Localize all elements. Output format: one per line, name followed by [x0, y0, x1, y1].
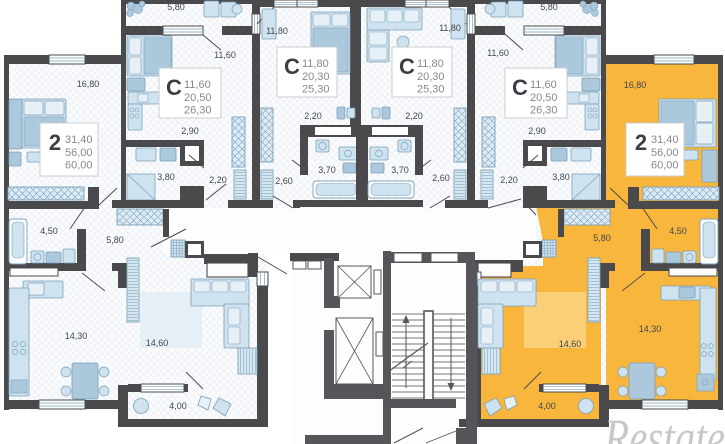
svg-text:26,30: 26,30	[530, 105, 558, 117]
svg-text:4,00: 4,00	[538, 401, 556, 411]
svg-text:11,60: 11,60	[530, 79, 557, 91]
svg-text:11,60: 11,60	[184, 79, 211, 91]
svg-text:11,80: 11,80	[266, 26, 288, 36]
svg-text:56,00: 56,00	[65, 147, 93, 159]
svg-text:3,80: 3,80	[157, 172, 175, 182]
svg-text:C: C	[399, 54, 415, 79]
svg-text:31,40: 31,40	[65, 134, 93, 146]
svg-text:56,00: 56,00	[651, 147, 679, 159]
svg-text:3,70: 3,70	[318, 165, 336, 175]
svg-text:14,60: 14,60	[559, 339, 582, 349]
svg-text:25,30: 25,30	[417, 84, 445, 96]
svg-text:2: 2	[49, 130, 61, 155]
svg-text:C: C	[284, 54, 300, 79]
svg-text:4,00: 4,00	[169, 401, 187, 411]
svg-text:11,60: 11,60	[214, 50, 236, 60]
svg-text:2,90: 2,90	[181, 126, 199, 136]
svg-text:20,30: 20,30	[417, 71, 445, 83]
svg-text:4,50: 4,50	[40, 226, 58, 236]
svg-text:14,30: 14,30	[65, 331, 88, 341]
svg-text:11,80: 11,80	[417, 58, 444, 70]
svg-text:4,50: 4,50	[669, 226, 687, 236]
svg-text:60,00: 60,00	[65, 160, 93, 172]
svg-text:2,60: 2,60	[275, 176, 293, 186]
svg-text:2: 2	[635, 130, 647, 155]
svg-text:2,20: 2,20	[209, 175, 227, 185]
svg-text:2,20: 2,20	[500, 175, 518, 185]
svg-text:3,70: 3,70	[391, 165, 409, 175]
svg-text:5,80: 5,80	[540, 2, 558, 12]
svg-text:20,50: 20,50	[184, 92, 212, 104]
svg-text:Restate: Restate	[603, 408, 725, 444]
svg-text:5,80: 5,80	[167, 2, 185, 12]
svg-text:20,30: 20,30	[302, 71, 330, 83]
svg-text:14,60: 14,60	[146, 338, 169, 348]
svg-text:11,80: 11,80	[439, 23, 461, 33]
svg-text:20,50: 20,50	[530, 92, 558, 104]
svg-text:2,20: 2,20	[304, 111, 322, 121]
svg-text:11,80: 11,80	[302, 58, 329, 70]
svg-text:2,90: 2,90	[528, 126, 546, 136]
svg-text:16,80: 16,80	[77, 79, 100, 89]
svg-text:3,80: 3,80	[552, 172, 570, 182]
svg-text:C: C	[166, 75, 182, 100]
svg-text:C: C	[512, 75, 528, 100]
svg-text:2,60: 2,60	[432, 173, 450, 183]
svg-text:25,30: 25,30	[302, 84, 330, 96]
svg-text:5,80: 5,80	[106, 235, 124, 245]
svg-text:31,40: 31,40	[651, 134, 679, 146]
svg-text:26,30: 26,30	[184, 105, 212, 117]
svg-text:60,00: 60,00	[651, 160, 679, 172]
svg-text:2,20: 2,20	[405, 111, 423, 121]
svg-text:5,80: 5,80	[593, 233, 611, 243]
svg-text:16,80: 16,80	[624, 80, 647, 90]
svg-text:14,30: 14,30	[639, 324, 662, 334]
svg-text:11,60: 11,60	[487, 48, 509, 58]
